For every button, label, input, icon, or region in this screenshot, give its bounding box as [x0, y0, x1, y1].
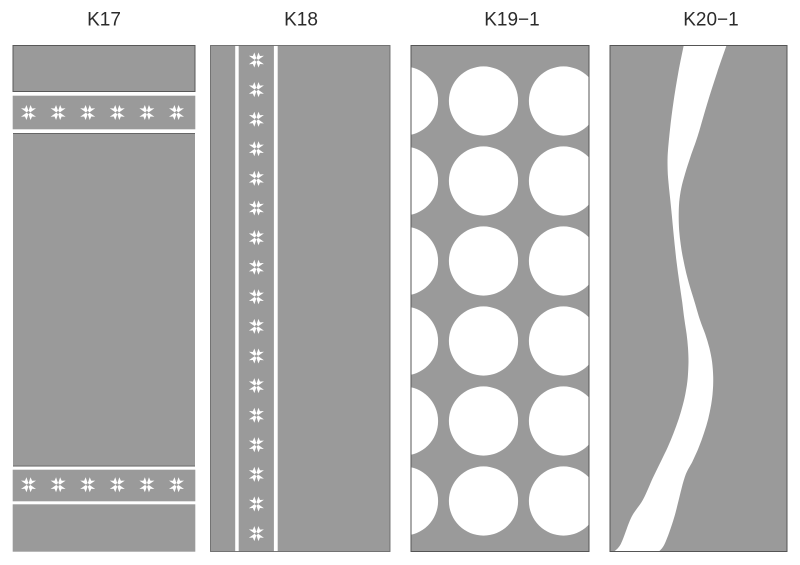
svg-text:K18: K18 [284, 10, 318, 31]
svg-text:K17: K17 [87, 10, 121, 31]
svg-text:K19−1: K19−1 [484, 10, 539, 31]
svg-text:K20−1: K20−1 [683, 10, 738, 31]
